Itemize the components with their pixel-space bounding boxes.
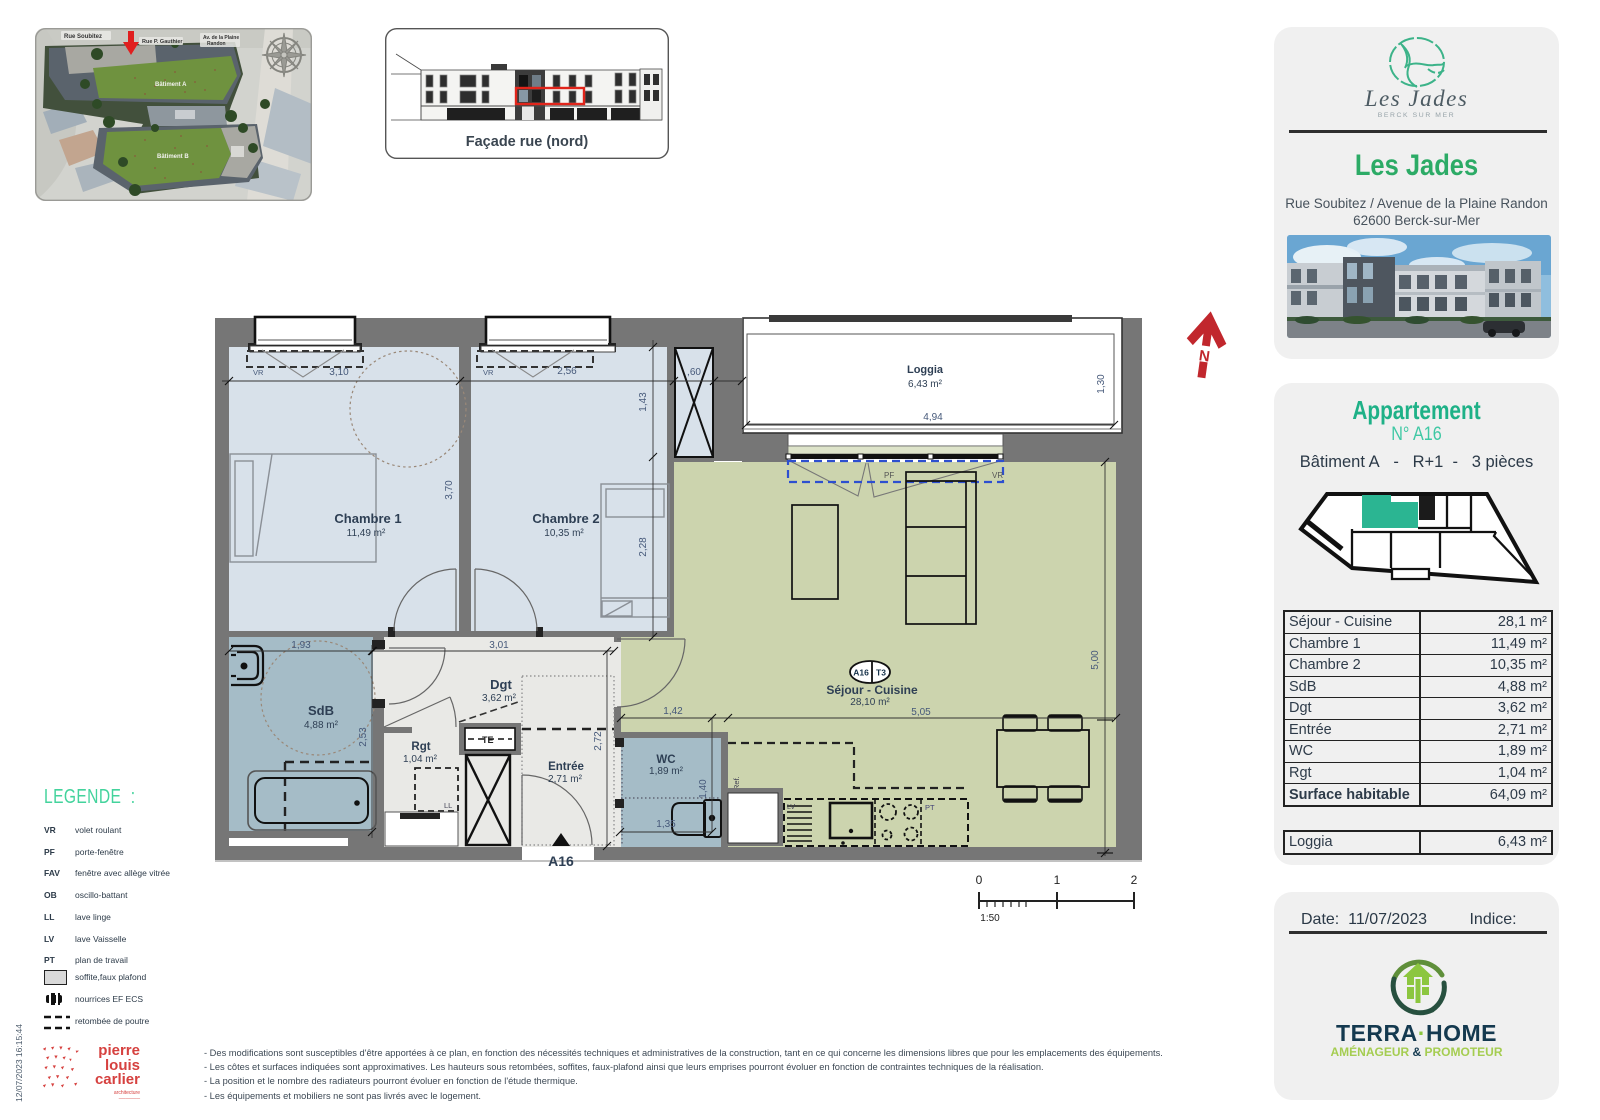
svg-text:3,10: 3,10 <box>329 367 349 378</box>
svg-text:Chambre 1: Chambre 1 <box>334 511 401 526</box>
svg-text:3,70: 3,70 <box>444 480 455 500</box>
svg-text:Dgt: Dgt <box>490 677 512 692</box>
svg-text:Rue Soubitez: Rue Soubitez <box>64 34 102 40</box>
svg-text:2: 2 <box>1131 873 1138 887</box>
svg-text:0: 0 <box>976 873 983 887</box>
svg-text:1: 1 <box>1054 873 1061 887</box>
svg-text:Entrée: Entrée <box>548 761 584 773</box>
svg-text:VR: VR <box>483 368 494 377</box>
svg-text:PT: PT <box>925 803 935 812</box>
svg-text:2,72: 2,72 <box>593 731 604 751</box>
svg-text:1,30: 1,30 <box>1096 374 1107 394</box>
svg-text:2,56: 2,56 <box>557 366 577 377</box>
svg-text:LV: LV <box>787 804 795 811</box>
svg-text:6,43 m²: 6,43 m² <box>908 379 943 390</box>
svg-text:T3: T3 <box>876 668 886 678</box>
svg-text:A16: A16 <box>853 668 869 678</box>
svg-text:A16: A16 <box>548 853 574 869</box>
svg-text:5,00: 5,00 <box>1090 650 1101 670</box>
svg-text:Rue P. Gauthier: Rue P. Gauthier <box>142 39 183 45</box>
svg-text:WC: WC <box>656 754 675 766</box>
svg-text:VR: VR <box>992 471 1003 480</box>
svg-text:1,04 m²: 1,04 m² <box>403 754 438 765</box>
svg-text:LL: LL <box>444 801 452 810</box>
svg-text:3,62 m²: 3,62 m² <box>482 693 517 704</box>
svg-text:5,05: 5,05 <box>911 707 931 718</box>
svg-text:Bâtiment A: Bâtiment A <box>155 82 187 88</box>
svg-text:4,88 m²: 4,88 m² <box>304 720 339 731</box>
svg-text:Loggia: Loggia <box>907 364 944 376</box>
svg-text:Chambre 2: Chambre 2 <box>532 511 599 526</box>
svg-text:Façade rue (nord): Façade rue (nord) <box>466 134 589 150</box>
svg-text:1,89 m²: 1,89 m² <box>649 766 684 777</box>
svg-text:Bâtiment B: Bâtiment B <box>157 154 189 160</box>
svg-text:4,94: 4,94 <box>923 412 943 423</box>
svg-text:1,43: 1,43 <box>638 392 649 412</box>
svg-text:N: N <box>1198 347 1211 365</box>
svg-text:Randon: Randon <box>207 41 226 47</box>
svg-text:,60: ,60 <box>687 367 701 378</box>
svg-text:3,01: 3,01 <box>489 640 509 651</box>
svg-text:TE: TE <box>482 735 494 745</box>
svg-text:1,35: 1,35 <box>656 819 676 830</box>
svg-text:1,93: 1,93 <box>291 640 311 651</box>
svg-text:1,42: 1,42 <box>663 706 683 717</box>
svg-text:2,71 m²: 2,71 m² <box>548 774 583 785</box>
svg-text:2,28: 2,28 <box>638 537 649 557</box>
svg-text:VR: VR <box>253 368 264 377</box>
svg-text:Ref.: Ref. <box>732 776 741 790</box>
svg-text:Séjour - Cuisine: Séjour - Cuisine <box>826 683 918 697</box>
svg-text:10,35 m²: 10,35 m² <box>544 528 584 539</box>
svg-text:PF: PF <box>884 471 894 480</box>
svg-text:SdB: SdB <box>308 703 334 718</box>
svg-text:2,53: 2,53 <box>358 727 369 747</box>
svg-text:11,49 m²: 11,49 m² <box>347 528 386 539</box>
svg-text:28,10 m²: 28,10 m² <box>850 697 890 708</box>
svg-text:Rgt: Rgt <box>411 741 430 753</box>
svg-text:1:50: 1:50 <box>980 913 1000 924</box>
svg-text:1,40: 1,40 <box>698 779 709 799</box>
